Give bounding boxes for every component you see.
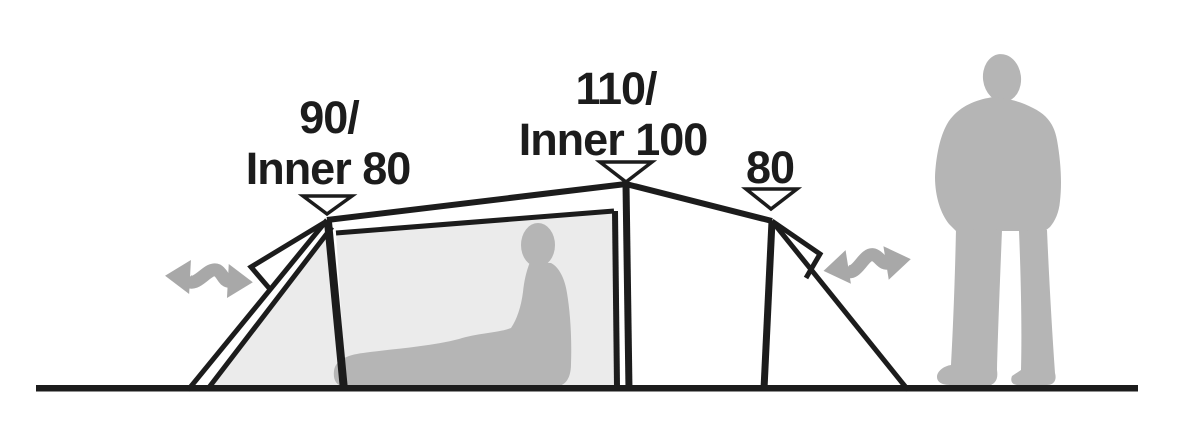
standing-person-left-leg: [937, 229, 1002, 385]
ventilation-arrow-right-icon: [821, 240, 914, 289]
label-pole1-line2: Inner 80: [246, 143, 411, 194]
right-fly-edge: [772, 221, 908, 390]
arrow-left-head: [164, 259, 191, 294]
inner-tent-right-edge: [615, 211, 617, 387]
standing-person-right-leg: [1011, 230, 1055, 385]
label-pole1-line1: 90/: [299, 92, 360, 143]
arrow-left-head: [821, 250, 851, 287]
seated-person-head: [521, 223, 555, 267]
ground-line: [36, 385, 1138, 392]
right-tent-pole: [764, 221, 772, 389]
standing-person-head: [980, 52, 1024, 104]
standing-person-silhouette: [935, 52, 1061, 385]
middle-tent-pole: [626, 184, 629, 390]
height-marker-middle-icon: [600, 162, 652, 182]
standing-person-torso: [935, 97, 1061, 231]
ventilation-arrow-left-icon: [164, 259, 254, 300]
arrow-wavy-shaft: [187, 268, 232, 284]
arrow-wavy-shaft: [844, 252, 890, 272]
tent-height-diagram: 90/ Inner 80 110/ Inner 100 80: [0, 0, 1200, 429]
label-pole2-line1: 110/: [575, 63, 658, 114]
tent-diagram-canvas: 90/ Inner 80 110/ Inner 100 80: [0, 0, 1200, 429]
height-marker-left-icon: [303, 196, 352, 214]
dimension-labels: 90/ Inner 80 110/ Inner 100 80: [246, 63, 794, 194]
label-pole2-line2: Inner 100: [519, 114, 708, 165]
label-pole3-line1: 80: [746, 142, 794, 193]
